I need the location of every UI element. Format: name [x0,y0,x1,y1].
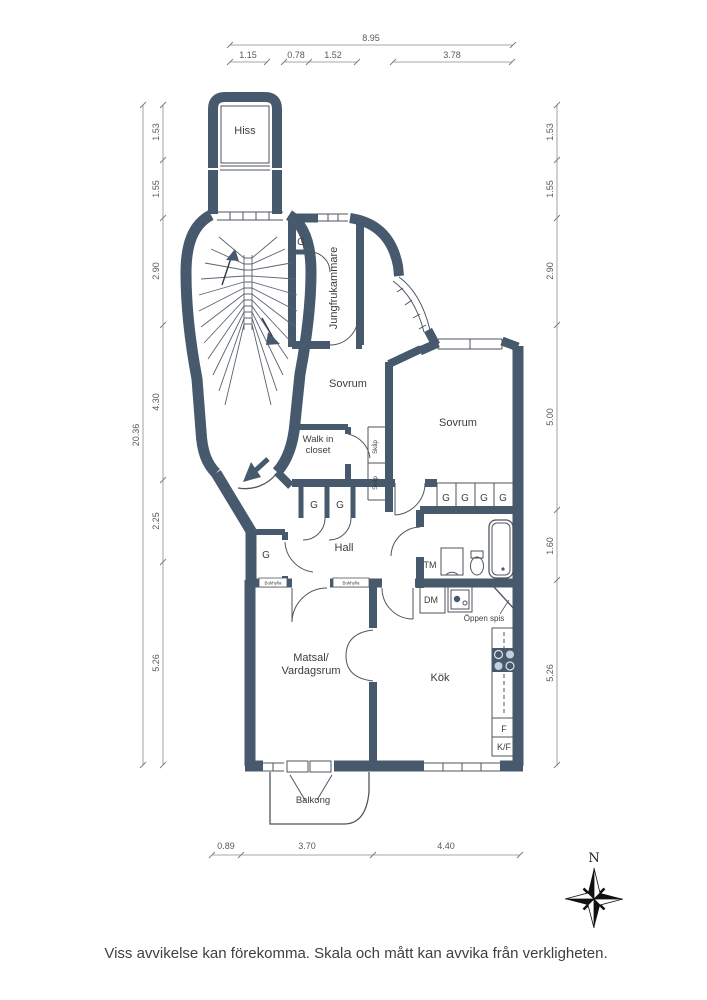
wall-entry-stub [277,472,291,486]
window-curved-bay [393,277,430,332]
room-label-sovrum2: Sovrum [439,417,477,429]
dim-bottom-3: 4.40 [437,841,455,851]
dim-top-2: 0.78 [287,50,305,60]
stair-center-flight [244,255,252,330]
stair-treads [199,237,297,405]
compass-star [565,868,623,928]
g-label-hall-left: G [262,550,270,561]
room-label-walkin-2: closet [306,445,331,456]
room-label-kok: Kök [431,672,450,684]
washbasin [441,548,463,575]
door-walkin [348,434,370,458]
bathtub [489,520,513,578]
bathtub-inner [492,523,510,575]
doors-hall-closets [303,518,351,540]
room-label-matsal-2: Vardagsrum [281,665,340,677]
skap-label-2: Skåp [372,476,379,490]
doors [238,252,425,800]
dim-left-total: 20.36 [131,424,141,447]
dishwasher-knob [463,601,467,605]
door-matsal [292,588,327,622]
stair-down-arrow [262,318,280,345]
skap-label-1: Skåp [372,440,379,454]
window-matsal [263,763,284,771]
bookshelf-left-label: Bokhylla [264,581,282,586]
room-label-walkin-1: Walk in [303,434,334,445]
dim-top-4: 3.78 [443,50,461,60]
wall-hall-closets [301,483,353,518]
g-label-jungfru: G [297,237,305,248]
balcony-door-leaf-1 [287,761,308,772]
compass-north-label: N [588,851,599,866]
elevator-door [220,166,270,170]
dim-left-2: 1.55 [151,180,161,198]
door-hall-left-closet [285,542,313,572]
floor-plan: Bokhylla Bokhylla [0,0,707,1000]
g-label-row-1: G [442,493,450,504]
wall-stairwell-left [186,215,216,473]
bookshelves: Bokhylla Bokhylla [259,578,369,587]
dimensions-top: 8.95 1.15 0.78 1.52 3.78 [227,33,516,65]
room-label-hiss: Hiss [234,125,256,137]
burner-3 [495,662,503,670]
room-label-hall: Hall [335,542,354,554]
wall-west-diagonal [216,473,251,583]
interior-walls [250,220,518,766]
g-label-row-3: G [480,493,488,504]
bathtub-drain [501,567,504,570]
dimensions-bottom: 0.89 3.70 4.40 [209,841,523,858]
dim-top-3: 1.52 [324,50,342,60]
dimensions-right: 1.53 1.55 2.90 5.00 1.60 5.26 [545,102,560,768]
dim-right-4: 5.00 [545,408,555,426]
dimensions-left: 20.36 1.53 1.55 2.90 4.30 2.25 5.26 [131,102,166,768]
kf-label: K/F [497,742,512,752]
entry-arrow [243,459,268,482]
balcony-door-leaf-2 [310,761,331,772]
room-label-balkong: Balkong [296,795,330,806]
fireplace-leader [500,600,509,614]
dim-right-3: 2.90 [545,262,555,280]
bookshelf-right-label: Bokhylla [342,581,360,586]
door-bathroom [391,527,420,556]
bathroom-fixtures [441,520,513,578]
dim-right-6: 5.26 [545,664,555,682]
dim-left-1: 1.53 [151,123,161,141]
disclaimer-text: Viss avvikelse kan förekomma. Skala och … [104,945,607,962]
window-kok [424,763,500,771]
room-label-sovrum1: Sovrum [329,378,367,390]
french-doors-matsal-kok [346,630,373,681]
dim-right-5: 1.60 [545,537,555,555]
burner-2 [506,651,514,659]
dim-bottom-2: 3.70 [298,841,316,851]
compass-rose: N [565,851,623,928]
stair-up-arrow [222,249,239,285]
exterior-walls [186,97,523,766]
oppen-spis-label: Öppen spis [464,614,504,623]
room-label-matsal-1: Matsal/ [293,652,329,664]
g-label-hall-2: G [336,500,344,511]
tm-label: TM [424,560,437,570]
g-label-row-4: G [499,493,507,504]
floor-plan-page: Bokhylla Bokhylla [0,0,707,1000]
dim-left-6: 5.26 [151,654,161,672]
dim-left-5: 2.25 [151,512,161,530]
dim-right-1: 1.53 [545,123,555,141]
room-labels: Hiss Jungfrukammare Sovrum Sovrum Walk i… [234,125,477,806]
window-sovrum2-bay [438,339,502,349]
dim-top-1: 1.15 [239,50,257,60]
stairs [199,237,297,405]
f-label: F [501,724,507,734]
dim-left-3: 2.90 [151,262,161,280]
g-label-hall-1: G [310,500,318,511]
wall-landing [213,170,277,214]
dm-label: DM [424,595,438,605]
g-label-row-2: G [461,493,469,504]
dim-bottom-1: 0.89 [217,841,235,851]
dim-right-2: 1.55 [545,180,555,198]
wall-sovrum-divider [389,349,421,512]
dim-left-4: 4.30 [151,393,161,411]
door-kok [382,588,413,619]
window-jungfrukammare [318,214,348,221]
dishwasher-dial [454,596,460,602]
toilet-bowl [471,557,484,575]
dim-top-total: 8.95 [362,33,380,43]
room-label-jungfrukammare: Jungfrukammare [328,247,340,330]
